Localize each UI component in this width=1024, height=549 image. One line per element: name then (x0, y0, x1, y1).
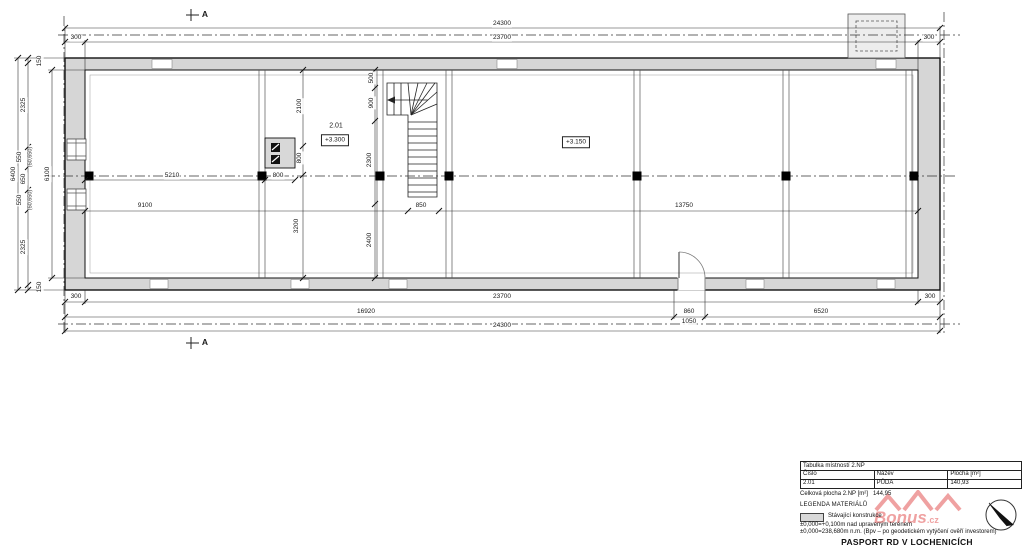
section-marker-bottom: A (201, 338, 209, 347)
dimension-label: 150 (37, 55, 44, 68)
dimension-label: 5210 (164, 173, 180, 180)
dimension-label: 2325 (21, 239, 28, 255)
dimension-label: 6100 (45, 166, 52, 182)
dimension-label: 550 (17, 194, 24, 207)
dimension-label: 3200 (294, 218, 301, 234)
dimension-label: 13750 (674, 203, 694, 210)
dimension-label: 500 (369, 72, 376, 85)
dimension-label: 300 (924, 294, 937, 301)
dim-overall-top: 24300 (492, 21, 512, 28)
dimension-label: 2300 (367, 152, 374, 168)
dimension-label: 16920 (356, 309, 376, 316)
dimension-label: 860 (683, 309, 696, 316)
dimension-label: 1050 (681, 319, 697, 326)
dimension-label: 650 (21, 173, 28, 186)
dimension-label: 300 (70, 294, 83, 301)
dim-overall-bottom: 24300 (492, 323, 512, 330)
dimension-label: 150 (37, 281, 44, 294)
dimension-label: 800 (297, 152, 304, 165)
dimension-label: 6520 (813, 309, 829, 316)
dimension-label: 2100 (297, 98, 304, 114)
dimension-label: 2325 (21, 97, 28, 113)
room-number: 2.01 (328, 123, 344, 130)
floor-plan-sheet: 2430023700300300640061001502325550(50,65… (0, 0, 1024, 549)
dimension-label: 300 (923, 35, 936, 42)
dimension-label: 850 (415, 203, 428, 210)
dimension-label: 300 (70, 35, 83, 42)
dim-top: 23700 (492, 35, 512, 42)
dimension-label: 800 (272, 173, 285, 180)
sheet-title: PASPORT RD V LOCHENICÍCH (790, 537, 1024, 547)
dim-overall-left: 6400 (11, 166, 18, 182)
dimension-label: 550 (17, 151, 24, 164)
dimension-label: 23700 (492, 294, 512, 301)
dimension-label: (50,650) (28, 146, 34, 169)
dimension-label: 900 (369, 97, 376, 110)
elevation-label: +3.150 (562, 136, 590, 148)
dimension-label: 9100 (137, 203, 153, 210)
section-marker-top: A (201, 10, 209, 19)
dimension-label: (50,650) (28, 189, 34, 212)
dimension-label: 2400 (367, 232, 374, 248)
elevation-label: +3.300 (321, 134, 349, 146)
plan-dimension-labels: 2430023700300300640061001502325550(50,65… (0, 0, 1024, 549)
